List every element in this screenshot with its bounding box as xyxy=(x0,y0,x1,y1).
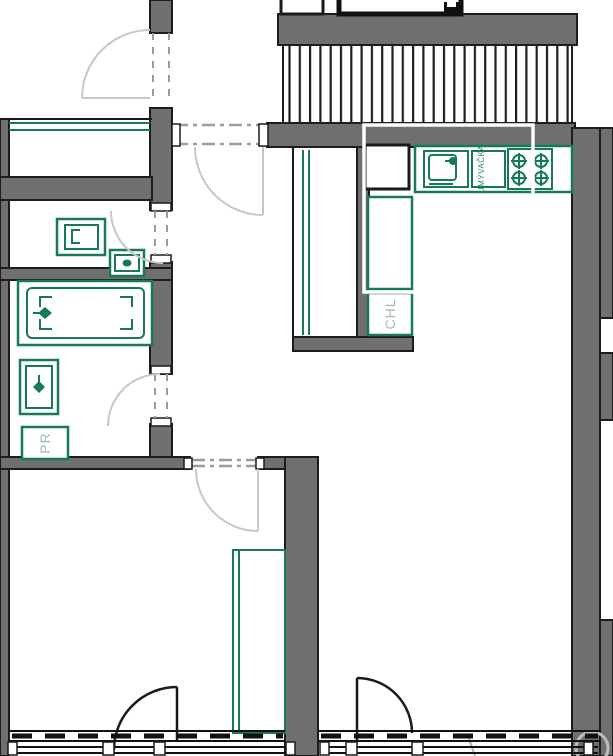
wall-left-vertical-lower xyxy=(150,424,172,458)
elevator-door-notch xyxy=(447,2,456,7)
hand-basin-drain xyxy=(123,260,132,267)
window-post-3 xyxy=(154,742,165,755)
hall-top-door-jamb-right xyxy=(259,124,268,146)
wall-left-vertical-upper xyxy=(150,108,172,210)
window-post-5 xyxy=(320,742,329,755)
wall-stair-landing xyxy=(278,14,577,45)
window-post-4 xyxy=(286,742,295,755)
staircase-treads xyxy=(283,45,572,123)
wc-door-jamb-top xyxy=(151,203,171,211)
wall-outer-left xyxy=(0,119,9,756)
wall-closet-bottom xyxy=(0,177,152,200)
fridge-label: CHL xyxy=(382,298,398,329)
wall-right-sliver-mid xyxy=(600,353,613,420)
wall-top-left-stub xyxy=(150,0,172,33)
kitchen-tall-cabinet xyxy=(368,197,412,289)
floor-plan-canvas: PR UMÝVAČKA CHL xyxy=(0,0,613,756)
floor-plan-drawing: PR UMÝVAČKA CHL xyxy=(0,0,613,756)
elevator-cab xyxy=(339,0,461,14)
hall-bottom-door-jamb-right xyxy=(256,458,264,469)
bath-door-jamb-bottom xyxy=(151,418,171,426)
wall-kitchen-block-bottom xyxy=(293,337,413,351)
hall-bottom-door-jamb-left xyxy=(184,458,192,469)
window-post-7 xyxy=(412,742,423,755)
window-post-6 xyxy=(346,742,357,755)
wall-right-sliver-top xyxy=(600,128,613,318)
kitchen-counter xyxy=(415,146,572,192)
window-post-1 xyxy=(8,742,17,755)
wall-between-bottom-rooms xyxy=(285,457,318,756)
window-post-8 xyxy=(584,742,593,755)
washing-machine-label: PR xyxy=(37,432,53,453)
window-post-2 xyxy=(103,742,114,755)
dishwasher-label: UMÝVAČKA xyxy=(477,145,486,193)
hall-top-door-jamb-left xyxy=(172,124,180,146)
wall-wc-bath-divider xyxy=(0,268,172,280)
kitchen-shaft-box xyxy=(365,145,409,189)
wall-outer-right xyxy=(572,128,600,756)
stair-landing-box xyxy=(281,0,323,14)
bath-door-jamb-top xyxy=(151,366,171,374)
